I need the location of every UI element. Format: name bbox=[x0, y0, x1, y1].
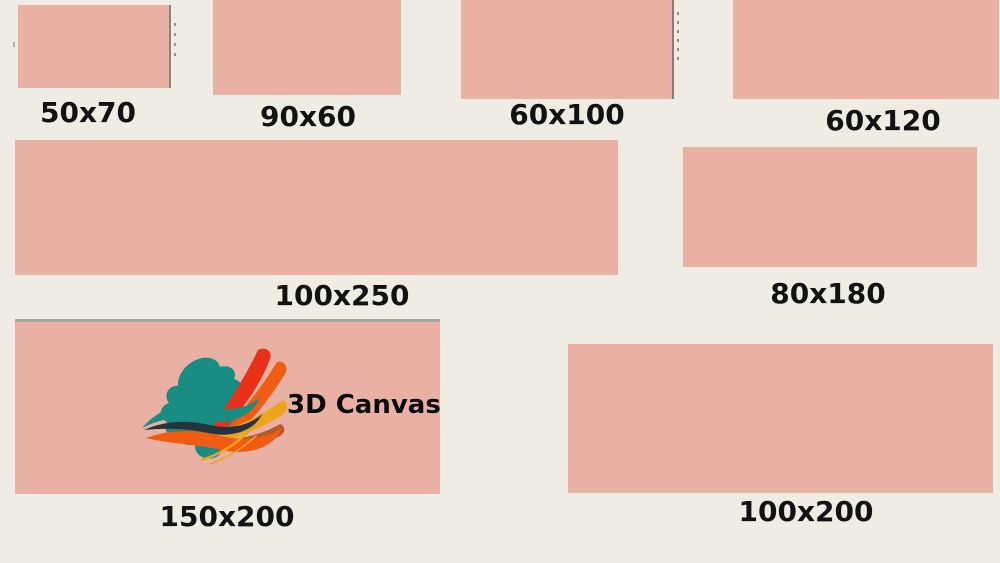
canvas-swatch-100x250 bbox=[15, 140, 618, 275]
canvas-swatch-50x70 bbox=[18, 5, 169, 88]
paint-swirl-logo-icon bbox=[132, 348, 290, 466]
logo-text: 3D Canvas bbox=[287, 392, 441, 418]
size-label-100x200: 100x200 bbox=[726, 497, 886, 528]
canvas-swatch-60x120 bbox=[733, 0, 999, 99]
photo-edge-line bbox=[672, 0, 674, 99]
size-label-60x120: 60x120 bbox=[803, 106, 963, 137]
size-label-50x70: 50x70 bbox=[8, 98, 168, 129]
canvas-swatch-80x180 bbox=[683, 147, 977, 267]
size-label-150x200: 150x200 bbox=[147, 502, 307, 533]
canvas-size-chart: 50x70 90x60 60x100 60x120 100x250 80x180… bbox=[0, 0, 1000, 563]
size-label-80x180: 80x180 bbox=[748, 279, 908, 310]
size-label-60x100: 60x100 bbox=[487, 100, 647, 131]
canvas-swatch-90x60 bbox=[213, 0, 401, 95]
photo-edge-line bbox=[169, 5, 171, 88]
size-label-100x250: 100x250 bbox=[262, 281, 422, 312]
photo-edge-marks bbox=[174, 23, 176, 56]
photo-edge-tick bbox=[13, 42, 15, 47]
photo-edge-marks bbox=[677, 12, 679, 62]
canvas-swatch-60x100 bbox=[461, 0, 673, 99]
size-label-90x60: 90x60 bbox=[228, 102, 388, 133]
canvas-swatch-100x200 bbox=[568, 344, 993, 493]
